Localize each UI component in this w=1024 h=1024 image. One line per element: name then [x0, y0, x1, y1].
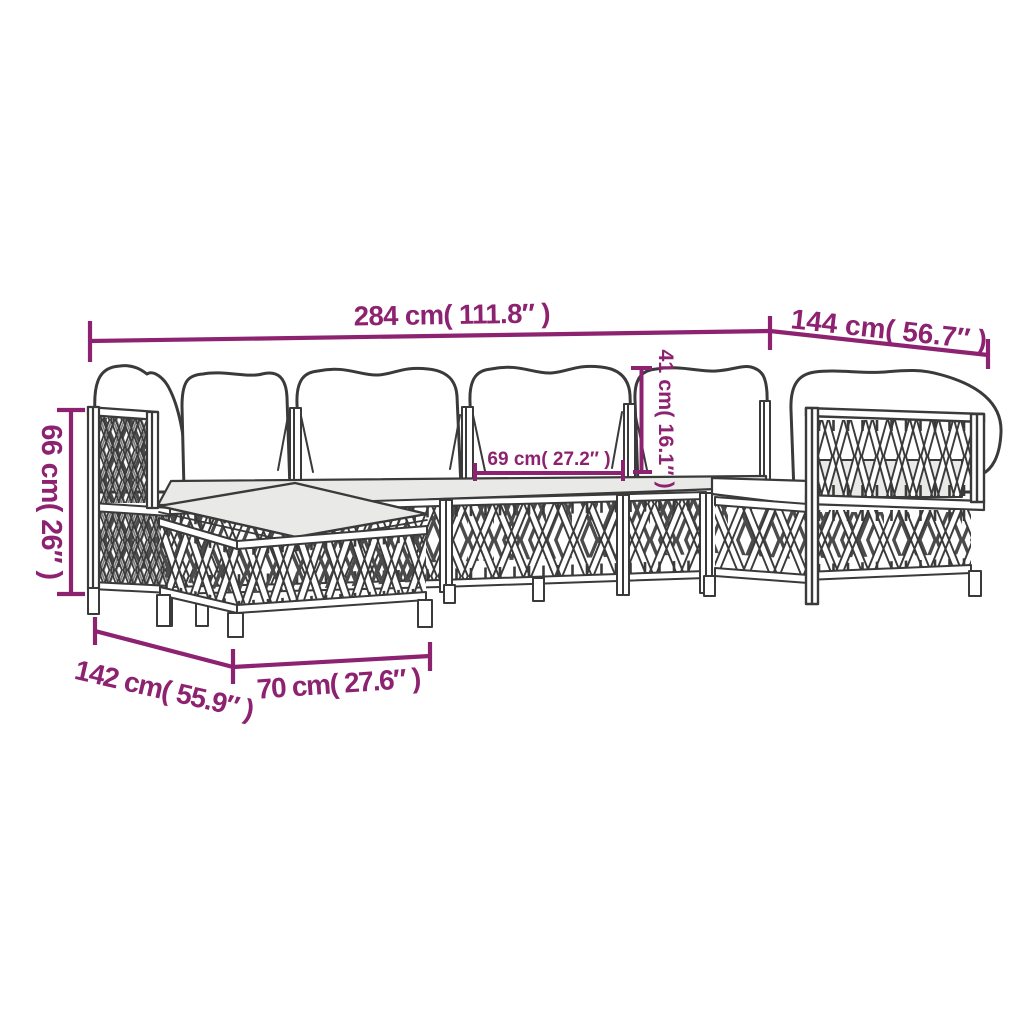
svg-text:66 cm( 26″ ): 66 cm( 26″ ) [35, 425, 67, 580]
svg-text:70 cm( 27.6″ ): 70 cm( 27.6″ ) [256, 662, 421, 704]
svg-text:144 cm( 56.7″ ): 144 cm( 56.7″ ) [789, 303, 988, 355]
svg-text:69 cm( 27.2″ ): 69 cm( 27.2″ ) [487, 449, 610, 470]
svg-text:284 cm( 111.8″ ): 284 cm( 111.8″ ) [354, 297, 551, 331]
svg-text:41 cm( 16.1″ ): 41 cm( 16.1″ ) [654, 349, 678, 488]
